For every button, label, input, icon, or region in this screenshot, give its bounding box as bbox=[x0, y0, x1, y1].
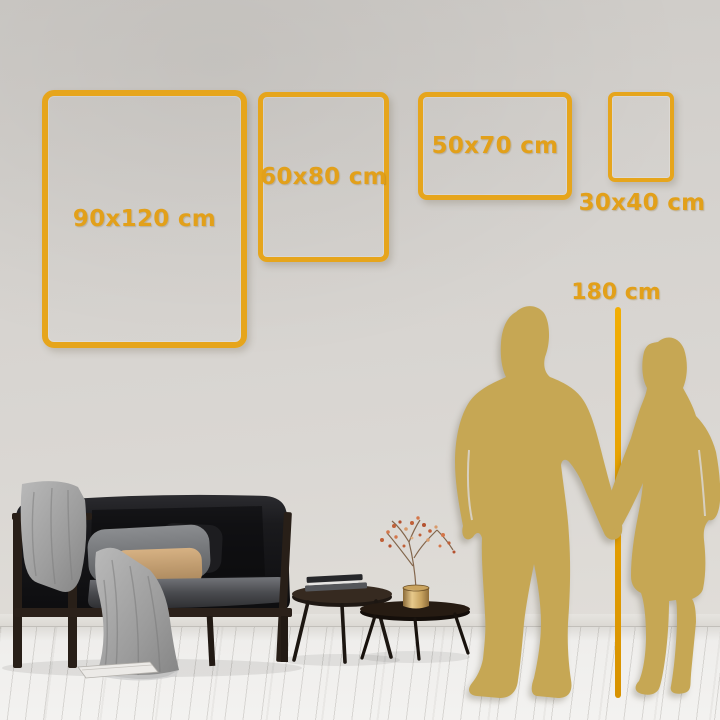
frame-90x120: 90x120 cm bbox=[42, 90, 247, 348]
large-coffee-table bbox=[292, 585, 392, 662]
couple-silhouette bbox=[440, 300, 720, 710]
frame-50x70: 50x70 cm bbox=[418, 92, 572, 200]
frame-60x80-label: 60x80 cm bbox=[260, 164, 387, 190]
frame-90x120-label: 90x120 cm bbox=[73, 206, 216, 232]
frame-50x70-label: 50x70 cm bbox=[432, 133, 559, 159]
frame-30x40-label: 30x40 cm bbox=[576, 190, 708, 216]
room-furniture-scene bbox=[0, 480, 470, 720]
frame-60x80: 60x80 cm bbox=[258, 92, 389, 262]
sofa bbox=[12, 481, 292, 680]
throw-blanket-arm bbox=[21, 481, 87, 592]
woman-silhouette bbox=[602, 338, 720, 695]
man-silhouette bbox=[455, 306, 622, 698]
poster-size-guide: 90x120 cm 60x80 cm 50x70 cm 30x40 cm 180… bbox=[0, 0, 720, 720]
frame-30x40 bbox=[608, 92, 674, 182]
